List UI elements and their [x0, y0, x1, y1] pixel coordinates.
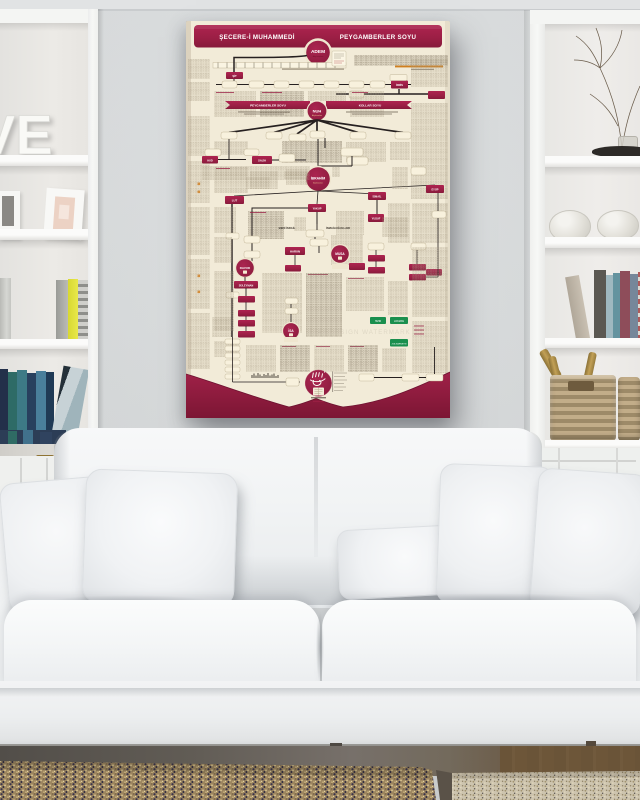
svg-text:ADEM: ADEM	[311, 49, 325, 55]
svg-text:AY DESIGN WATERMARK: AY DESIGN WATERMARK	[317, 329, 410, 336]
svg-text:Aleyhisselam: Aleyhisselam	[313, 55, 324, 58]
svg-text:YAKUP: YAKUP	[313, 207, 322, 211]
svg-text:MUSA: MUSA	[335, 252, 345, 256]
svg-text:PEYGAMBERLER SOYU: PEYGAMBERLER SOYU	[250, 104, 287, 108]
svg-text:YUSUF: YUSUF	[372, 217, 381, 221]
svg-text:NUH: NUH	[313, 109, 322, 114]
svg-text:HIZIR: HIZIR	[375, 320, 382, 323]
svg-text:Aleyhisselam: Aleyhisselam	[312, 114, 323, 117]
svg-text:DAVUD: DAVUD	[240, 266, 251, 270]
svg-text:BENİ İSRAİL: BENİ İSRAİL	[279, 225, 296, 230]
svg-text:ZÜLKARNEYN: ZÜLKARNEYN	[392, 343, 407, 346]
svg-text:ŞİT: ŞİT	[232, 73, 237, 78]
svg-text:HUD: HUD	[207, 158, 213, 162]
svg-text:LUT: LUT	[232, 199, 238, 203]
svg-text:LOKMAN: LOKMAN	[394, 320, 404, 323]
svg-text:PEYGAMBERLER SOYU: PEYGAMBERLER SOYU	[340, 34, 417, 41]
svg-text:KOLLAR SOYU: KOLLAR SOYU	[359, 104, 382, 108]
svg-text:İSMAİLOĞULLARI: İSMAİLOĞULLARI	[326, 225, 350, 230]
svg-text:VE: VE	[0, 104, 53, 160]
svg-text:HARUN: HARUN	[290, 250, 300, 254]
svg-text:İBRAHİM: İBRAHİM	[311, 177, 326, 181]
svg-text:İSA: İSA	[288, 329, 294, 333]
svg-text:ŞECERE-İ MUHAMMEDİ: ŞECERE-İ MUHAMMEDİ	[219, 34, 295, 41]
